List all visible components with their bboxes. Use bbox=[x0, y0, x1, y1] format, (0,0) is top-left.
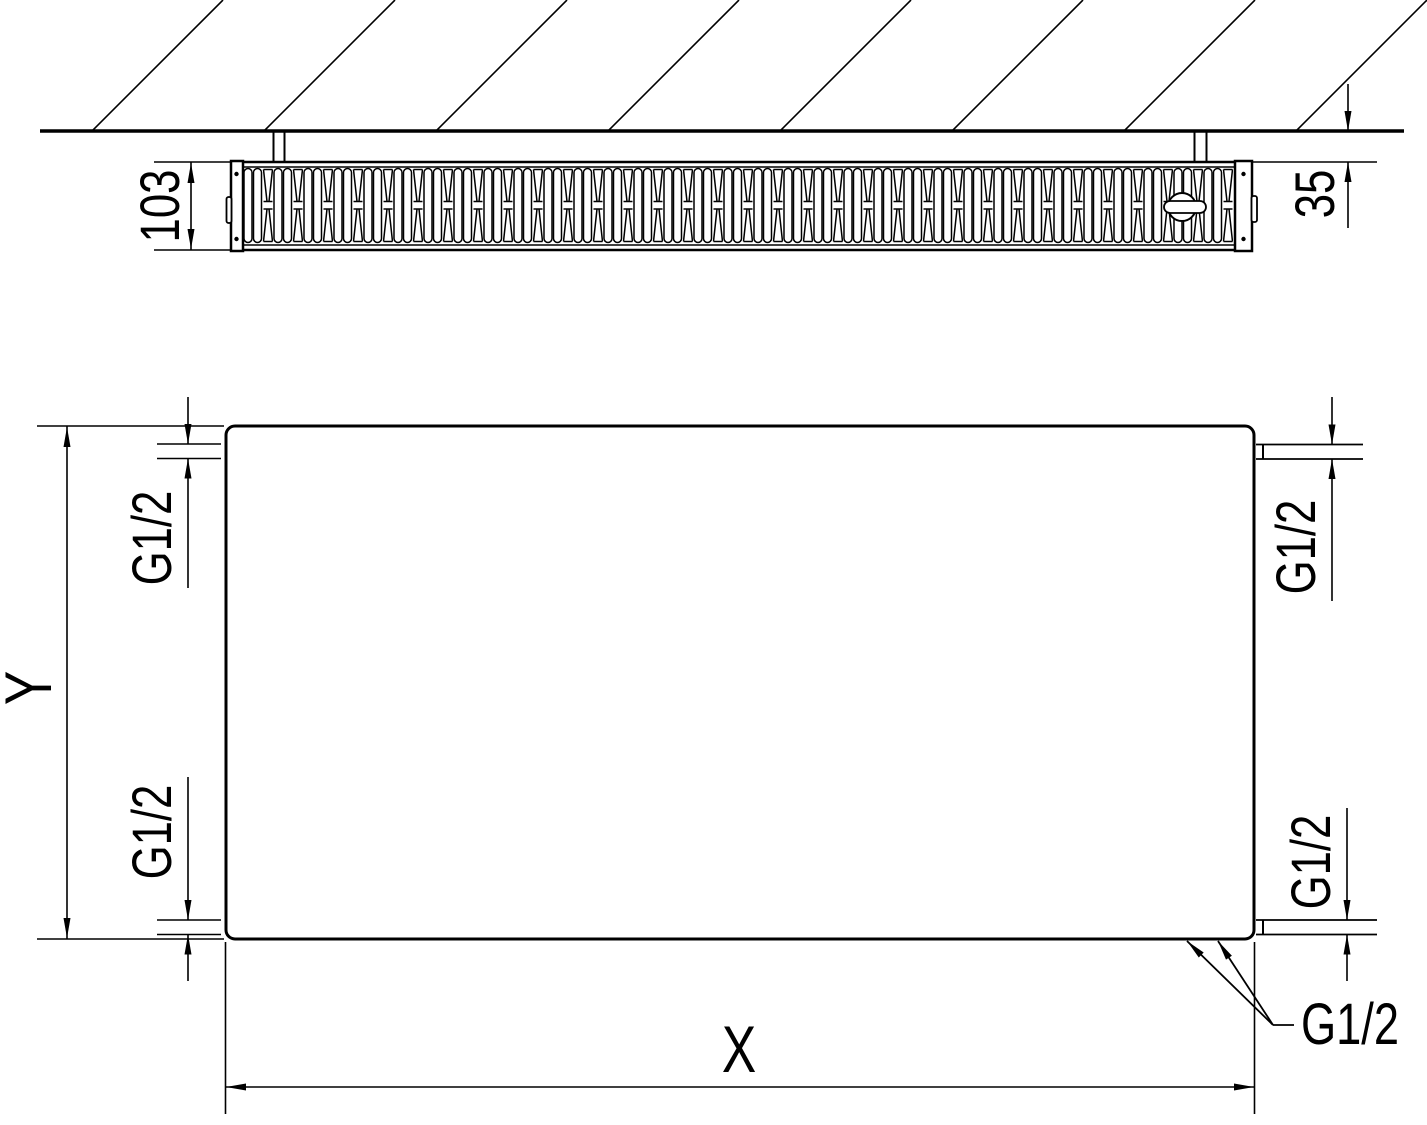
end-cap-left-boss bbox=[227, 197, 232, 223]
dimension-connection-top-right bbox=[1329, 397, 1336, 601]
wall-hatching bbox=[92, 0, 1427, 131]
connection-label-bottom-right: G1/2 bbox=[1283, 815, 1339, 910]
radiator-top-view bbox=[227, 161, 1258, 251]
drawing-linework bbox=[0, 0, 1427, 1125]
connection-label-top-left: G1/2 bbox=[124, 491, 180, 586]
radiator-front-view bbox=[226, 426, 1377, 939]
mounting-bracket-left bbox=[274, 131, 285, 162]
mounting-bracket-right bbox=[1195, 131, 1207, 162]
wall-clearance-dimension-label: 35 bbox=[1287, 170, 1343, 219]
depth-dimension-label: 103 bbox=[132, 170, 188, 243]
connection-label-bottom-left: G1/2 bbox=[124, 785, 180, 880]
connection-callout-leader bbox=[1187, 941, 1294, 1025]
height-dimension-label: Y bbox=[0, 671, 61, 705]
end-cap-right-boss bbox=[1252, 196, 1258, 222]
connection-stub-bottom-right bbox=[1256, 920, 1377, 935]
connection-label-top-right: G1/2 bbox=[1268, 500, 1324, 595]
radiator-front-panel bbox=[226, 426, 1254, 939]
connection-callout-label: G1/2 bbox=[1301, 996, 1399, 1054]
convector-fins bbox=[243, 167, 1233, 245]
width-dimension-label: X bbox=[722, 1016, 756, 1082]
dimension-connection-bottom-right bbox=[1344, 808, 1351, 981]
radiator-technical-drawing: 103 35 Y X G1/2 G1/2 G1/2 G1/2 G1/2 bbox=[0, 0, 1427, 1125]
connection-stub-top-right bbox=[1256, 445, 1363, 460]
